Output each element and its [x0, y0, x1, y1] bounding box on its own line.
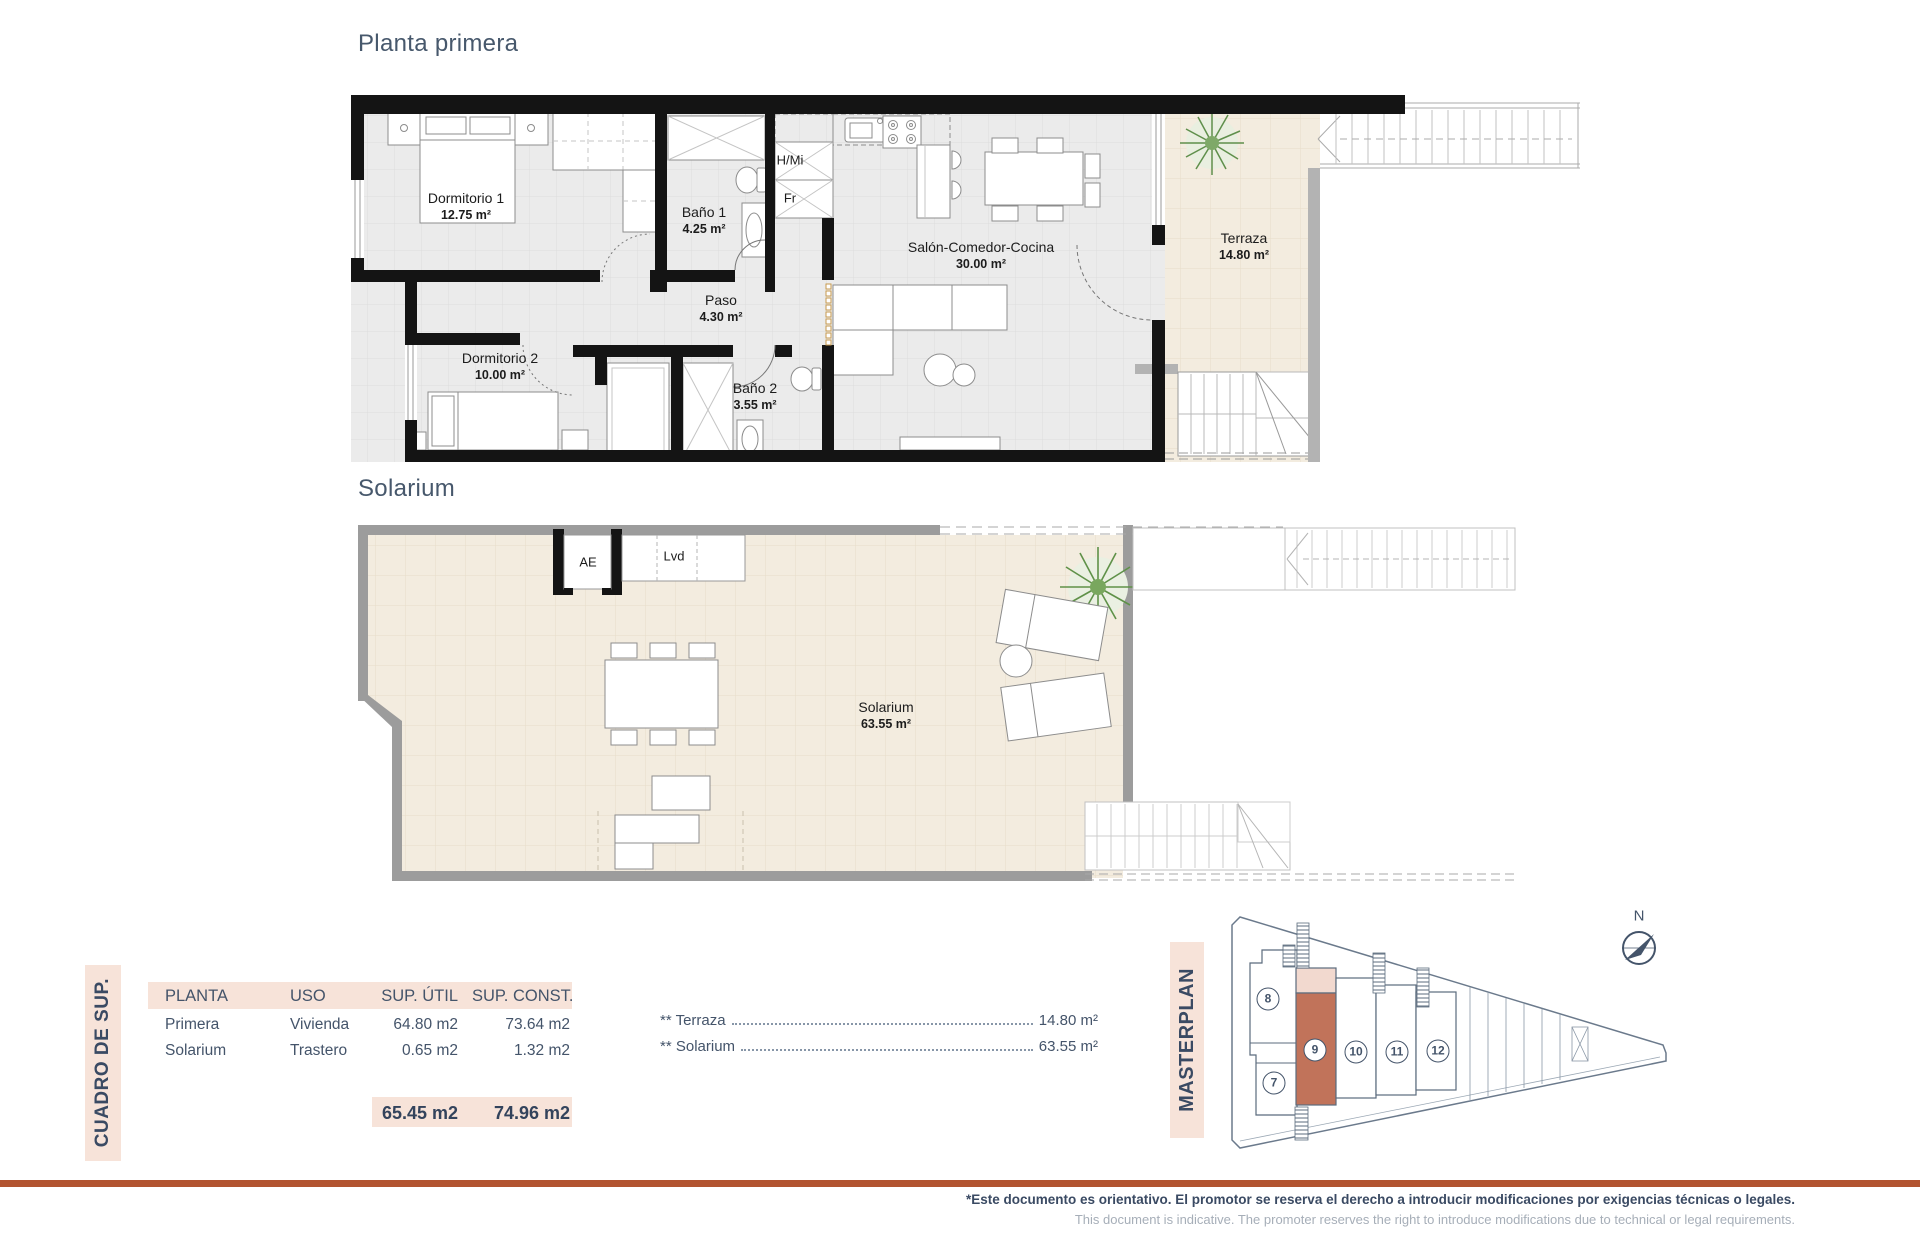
masterplan-side-label: MASTERPLAN	[1170, 942, 1204, 1138]
room-label-salon: Salón-Comedor-Cocina30.00 m²	[908, 239, 1054, 273]
col-header-planta: PLANTA	[165, 987, 228, 1006]
tag-lvd: Lvd	[664, 549, 685, 564]
room-label-terraza: Terraza14.80 m²	[1219, 230, 1269, 264]
disclaimer-es: *Este documento es orientativo. El promo…	[966, 1192, 1795, 1207]
room-label-solarium: Solarium63.55 m²	[858, 699, 913, 733]
note-terraza: ** Terraza14.80 m²	[660, 1012, 1098, 1029]
table-cell: Solarium	[165, 1042, 226, 1060]
masterplan-unit-11: 11	[1386, 1041, 1409, 1064]
accent-bar	[0, 1180, 1920, 1187]
floor1-plan-drawing	[340, 88, 1600, 470]
room-label-dormitorio1: Dormitorio 112.75 m²	[428, 190, 504, 224]
col-header-sup-util: SUP. ÚTIL	[378, 987, 458, 1006]
col-header-uso: USO	[290, 987, 326, 1006]
floorplan-sheet: Planta primera Solarium	[0, 0, 1920, 1250]
room-label-bano1: Baño 14.25 m²	[682, 204, 726, 238]
room-label-paso: Paso4.30 m²	[699, 292, 742, 326]
masterplan-unit-12: 12	[1427, 1040, 1450, 1063]
table-cell: Trastero	[290, 1042, 347, 1060]
room-label-dormitorio2: Dormitorio 210.00 m²	[462, 350, 538, 384]
table-cell: Primera	[165, 1016, 219, 1034]
masterplan-unit-7: 7	[1263, 1072, 1286, 1095]
total-sup-util: 65.45 m2	[350, 1103, 458, 1124]
floor1-title: Planta primera	[358, 30, 518, 58]
table-cell: 1.32 m2	[472, 1042, 570, 1060]
total-sup-const: 74.96 m2	[468, 1103, 570, 1124]
room-label-bano2: Baño 23.55 m²	[733, 380, 777, 414]
disclaimer-en: This document is indicative. The promote…	[1075, 1212, 1795, 1227]
masterplan-unit-10: 10	[1345, 1041, 1368, 1064]
tag-hmi: H/Mi	[777, 153, 804, 168]
north-label: N	[1634, 908, 1645, 925]
floor2-title: Solarium	[358, 475, 455, 503]
table-cell: 73.64 m2	[472, 1016, 570, 1034]
masterplan-drawing	[1220, 905, 1690, 1165]
table-cell: 64.80 m2	[370, 1016, 458, 1034]
north-arrow-icon	[1622, 932, 1656, 964]
tag-ae: AE	[579, 555, 596, 570]
masterplan-unit-8: 8	[1257, 988, 1280, 1011]
col-header-sup-const: SUP. CONST.	[472, 987, 570, 1006]
floor2-plan-drawing	[345, 515, 1545, 895]
table-cell: Vivienda	[290, 1016, 349, 1034]
note-solarium: ** Solarium63.55 m²	[660, 1038, 1098, 1055]
tag-fr: Fr	[784, 191, 796, 206]
table-cell: 0.65 m2	[370, 1042, 458, 1060]
summary-side-label: CUADRO DE SUP.	[85, 965, 121, 1161]
masterplan-unit-9: 9	[1304, 1039, 1327, 1062]
